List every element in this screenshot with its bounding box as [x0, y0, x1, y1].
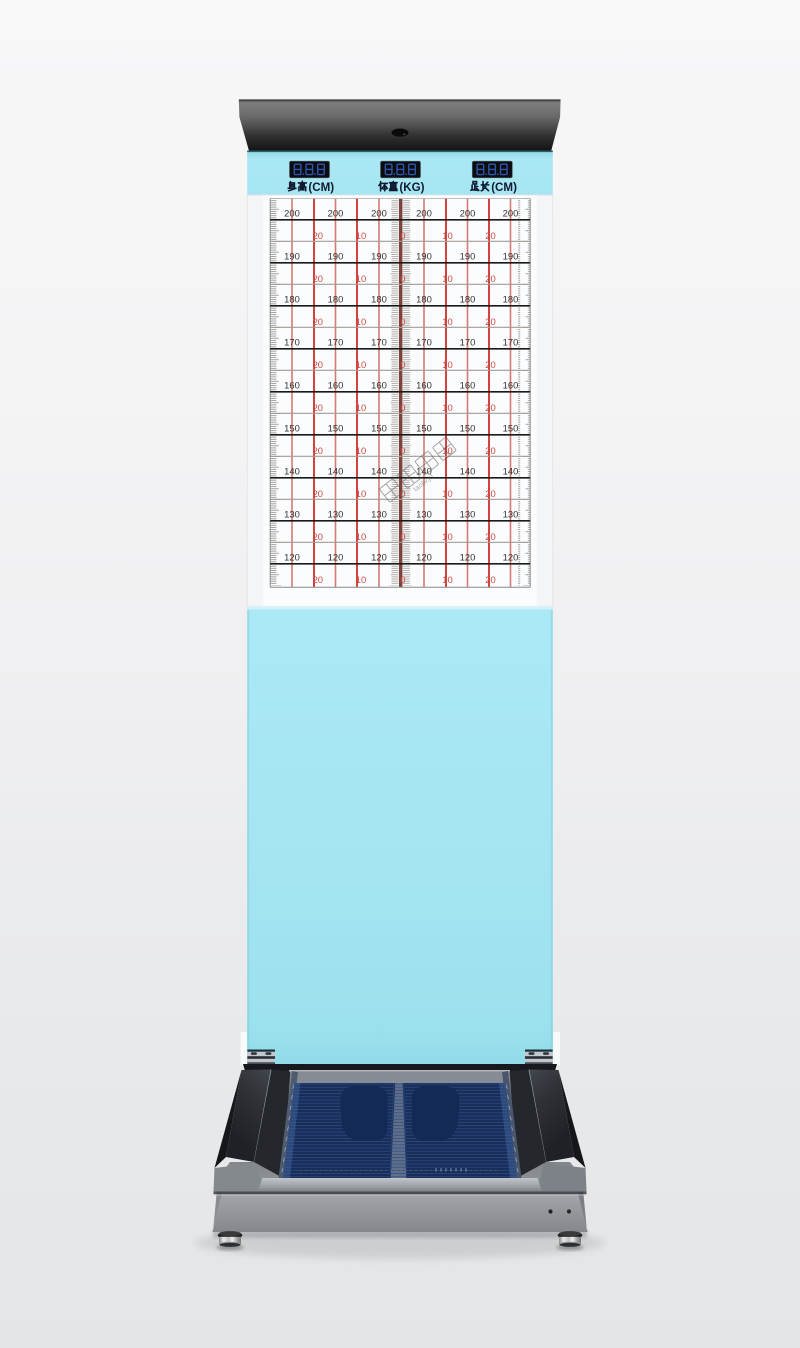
svg-text:0: 0 — [400, 273, 405, 284]
svg-text:20: 20 — [313, 531, 323, 542]
svg-text:180: 180 — [416, 294, 432, 305]
svg-text:140: 140 — [460, 466, 476, 477]
svg-text:10: 10 — [356, 402, 366, 413]
svg-text:10: 10 — [356, 531, 366, 542]
svg-text:200: 200 — [503, 208, 519, 219]
svg-text:10: 10 — [356, 230, 366, 241]
svg-text:190: 190 — [416, 251, 432, 262]
svg-text:(CM): (CM) — [308, 181, 334, 194]
svg-text:0: 0 — [400, 574, 405, 585]
svg-text:170: 170 — [416, 337, 432, 348]
svg-text:140: 140 — [503, 466, 519, 477]
svg-text:190: 190 — [371, 251, 387, 262]
svg-text:20: 20 — [313, 574, 323, 585]
svg-text:0: 0 — [400, 230, 405, 241]
svg-text:120: 120 — [328, 552, 344, 563]
svg-text:140: 140 — [371, 466, 387, 477]
svg-text:20: 20 — [485, 359, 495, 370]
svg-text:120: 120 — [503, 552, 519, 563]
svg-text:10: 10 — [356, 273, 366, 284]
svg-text:120: 120 — [284, 552, 300, 563]
svg-text:20: 20 — [313, 445, 323, 456]
svg-text:130: 130 — [416, 509, 432, 520]
svg-text:130: 130 — [284, 509, 300, 520]
svg-text:20: 20 — [313, 402, 323, 413]
svg-text:10: 10 — [442, 273, 452, 284]
svg-text:170: 170 — [460, 337, 476, 348]
svg-text:10: 10 — [442, 402, 452, 413]
svg-text:190: 190 — [284, 251, 300, 262]
svg-text:180: 180 — [503, 294, 519, 305]
svg-text:130: 130 — [503, 509, 519, 520]
svg-text:160: 160 — [284, 380, 300, 391]
svg-text:10: 10 — [442, 488, 452, 499]
svg-text:190: 190 — [460, 251, 476, 262]
svg-text:20: 20 — [485, 488, 495, 499]
svg-text:10: 10 — [356, 316, 366, 327]
svg-text:20: 20 — [485, 531, 495, 542]
svg-text:10: 10 — [442, 359, 452, 370]
svg-text:10: 10 — [442, 316, 452, 327]
svg-text:170: 170 — [503, 337, 519, 348]
svg-text:20: 20 — [313, 273, 323, 284]
svg-text:20: 20 — [485, 316, 495, 327]
svg-text:20: 20 — [485, 273, 495, 284]
svg-text:20: 20 — [313, 230, 323, 241]
svg-text:20: 20 — [485, 574, 495, 585]
svg-text:0: 0 — [400, 531, 405, 542]
svg-text:180: 180 — [371, 294, 387, 305]
svg-text:190: 190 — [328, 251, 344, 262]
svg-text:160: 160 — [371, 380, 387, 391]
svg-text:120: 120 — [371, 552, 387, 563]
svg-text:160: 160 — [460, 380, 476, 391]
svg-text:160: 160 — [416, 380, 432, 391]
svg-text:160: 160 — [503, 380, 519, 391]
svg-text:150: 150 — [416, 423, 432, 434]
svg-text:150: 150 — [371, 423, 387, 434]
svg-text:(KG): (KG) — [399, 181, 424, 194]
svg-text:200: 200 — [416, 208, 432, 219]
svg-text:200: 200 — [284, 208, 300, 219]
svg-text:200: 200 — [328, 208, 344, 219]
svg-text:(CM): (CM) — [491, 181, 517, 194]
svg-text:190: 190 — [503, 251, 519, 262]
svg-text:130: 130 — [328, 509, 344, 520]
svg-text:20: 20 — [485, 402, 495, 413]
svg-text:150: 150 — [328, 423, 344, 434]
svg-text:180: 180 — [284, 294, 300, 305]
svg-text:10: 10 — [356, 445, 366, 456]
svg-text:180: 180 — [460, 294, 476, 305]
svg-text:160: 160 — [328, 380, 344, 391]
svg-text:200: 200 — [371, 208, 387, 219]
svg-text:20: 20 — [485, 445, 495, 456]
svg-text:200: 200 — [460, 208, 476, 219]
svg-text:20: 20 — [485, 230, 495, 241]
svg-text:170: 170 — [284, 337, 300, 348]
svg-text:150: 150 — [284, 423, 300, 434]
svg-text:10: 10 — [442, 230, 452, 241]
svg-text:20: 20 — [313, 316, 323, 327]
svg-text:10: 10 — [356, 488, 366, 499]
svg-text:0: 0 — [400, 402, 405, 413]
svg-text:130: 130 — [460, 509, 476, 520]
svg-text:0: 0 — [400, 359, 405, 370]
svg-text:180: 180 — [328, 294, 344, 305]
svg-text:0: 0 — [400, 445, 405, 456]
svg-text:20: 20 — [313, 359, 323, 370]
svg-text:130: 130 — [371, 509, 387, 520]
svg-text:150: 150 — [503, 423, 519, 434]
svg-text:10: 10 — [442, 531, 452, 542]
svg-text:10: 10 — [442, 574, 452, 585]
svg-text:140: 140 — [328, 466, 344, 477]
svg-text:170: 170 — [328, 337, 344, 348]
svg-text:20: 20 — [313, 488, 323, 499]
svg-text:120: 120 — [460, 552, 476, 563]
svg-text:120: 120 — [416, 552, 432, 563]
svg-text:170: 170 — [371, 337, 387, 348]
svg-text:140: 140 — [284, 466, 300, 477]
svg-text:10: 10 — [356, 574, 366, 585]
svg-text:0: 0 — [400, 316, 405, 327]
svg-text:150: 150 — [460, 423, 476, 434]
svg-text:10: 10 — [356, 359, 366, 370]
